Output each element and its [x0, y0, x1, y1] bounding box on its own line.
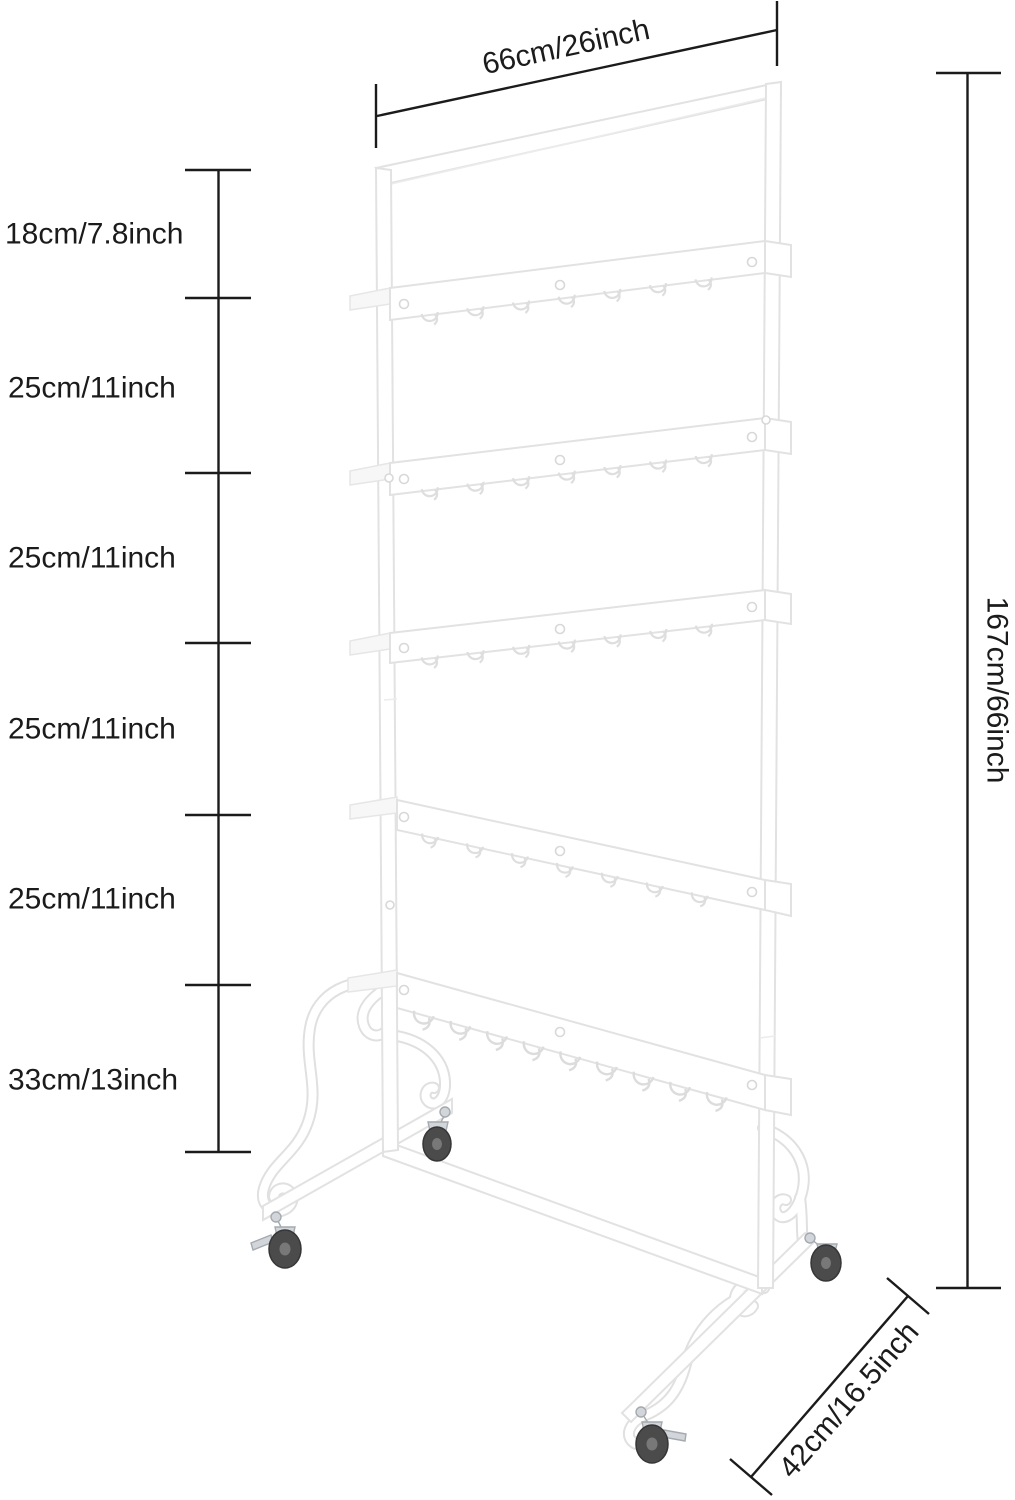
dimension-label-right-height: 167cm/66inch [981, 597, 1014, 784]
dimension-label-segment-3: 25cm/11inch [8, 542, 176, 575]
shelf-4 [350, 797, 791, 916]
product-dimension-image: 66cm/26inch 18cm/7.8inch 25cm/11inch 25c… [0, 0, 1015, 1500]
dimension-label-top-width: 66cm/26inch [479, 13, 652, 81]
dimension-label-segment-4: 25cm/11inch [8, 713, 176, 746]
shelf-3 [350, 590, 791, 669]
shelf-2 [350, 418, 791, 501]
shelf-1 [350, 241, 791, 326]
dimension-bottom-depth: 42cm/16.5inch [730, 1278, 929, 1495]
dimension-label-segment-5: 25cm/11inch [8, 883, 176, 916]
caster-wheel-back-right [805, 1233, 841, 1281]
dimension-label-segment-1: 18cm/7.8inch [5, 218, 183, 251]
dimension-label-bottom-depth: 42cm/16.5inch [773, 1316, 926, 1485]
dimension-right-height: 167cm/66inch [936, 73, 1014, 1288]
dimension-label-segment-2: 25cm/11inch [8, 372, 176, 405]
dimension-left-segments: 18cm/7.8inch 25cm/11inch 25cm/11inch 25c… [5, 170, 251, 1152]
dimension-label-segment-6: 33cm/13inch [8, 1064, 178, 1097]
base-cross-bar [383, 1140, 762, 1294]
frame-top-bar [376, 82, 781, 183]
rack-illustration [251, 82, 841, 1463]
rack-dimension-diagram: 66cm/26inch 18cm/7.8inch 25cm/11inch 25c… [0, 0, 1015, 1500]
caster-wheel-front-right [636, 1407, 686, 1463]
caster-wheel-front-left [251, 1212, 301, 1268]
scroll-leg-back-left [397, 1036, 445, 1104]
